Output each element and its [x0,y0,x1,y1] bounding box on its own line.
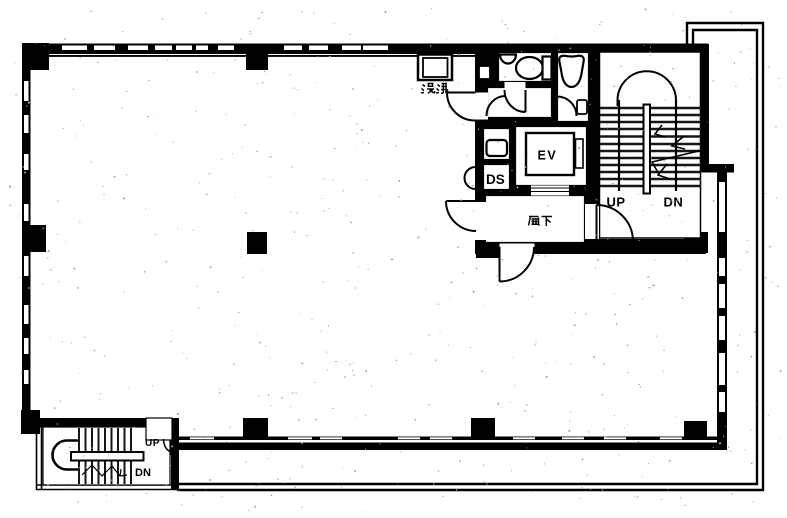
svg-text:UP: UP [607,195,626,210]
svg-text:UP: UP [145,438,160,449]
svg-text:EV: EV [538,149,558,163]
svg-text:DN: DN [135,467,151,479]
svg-text:DS: DS [486,172,505,187]
svg-text:DN: DN [664,195,684,210]
